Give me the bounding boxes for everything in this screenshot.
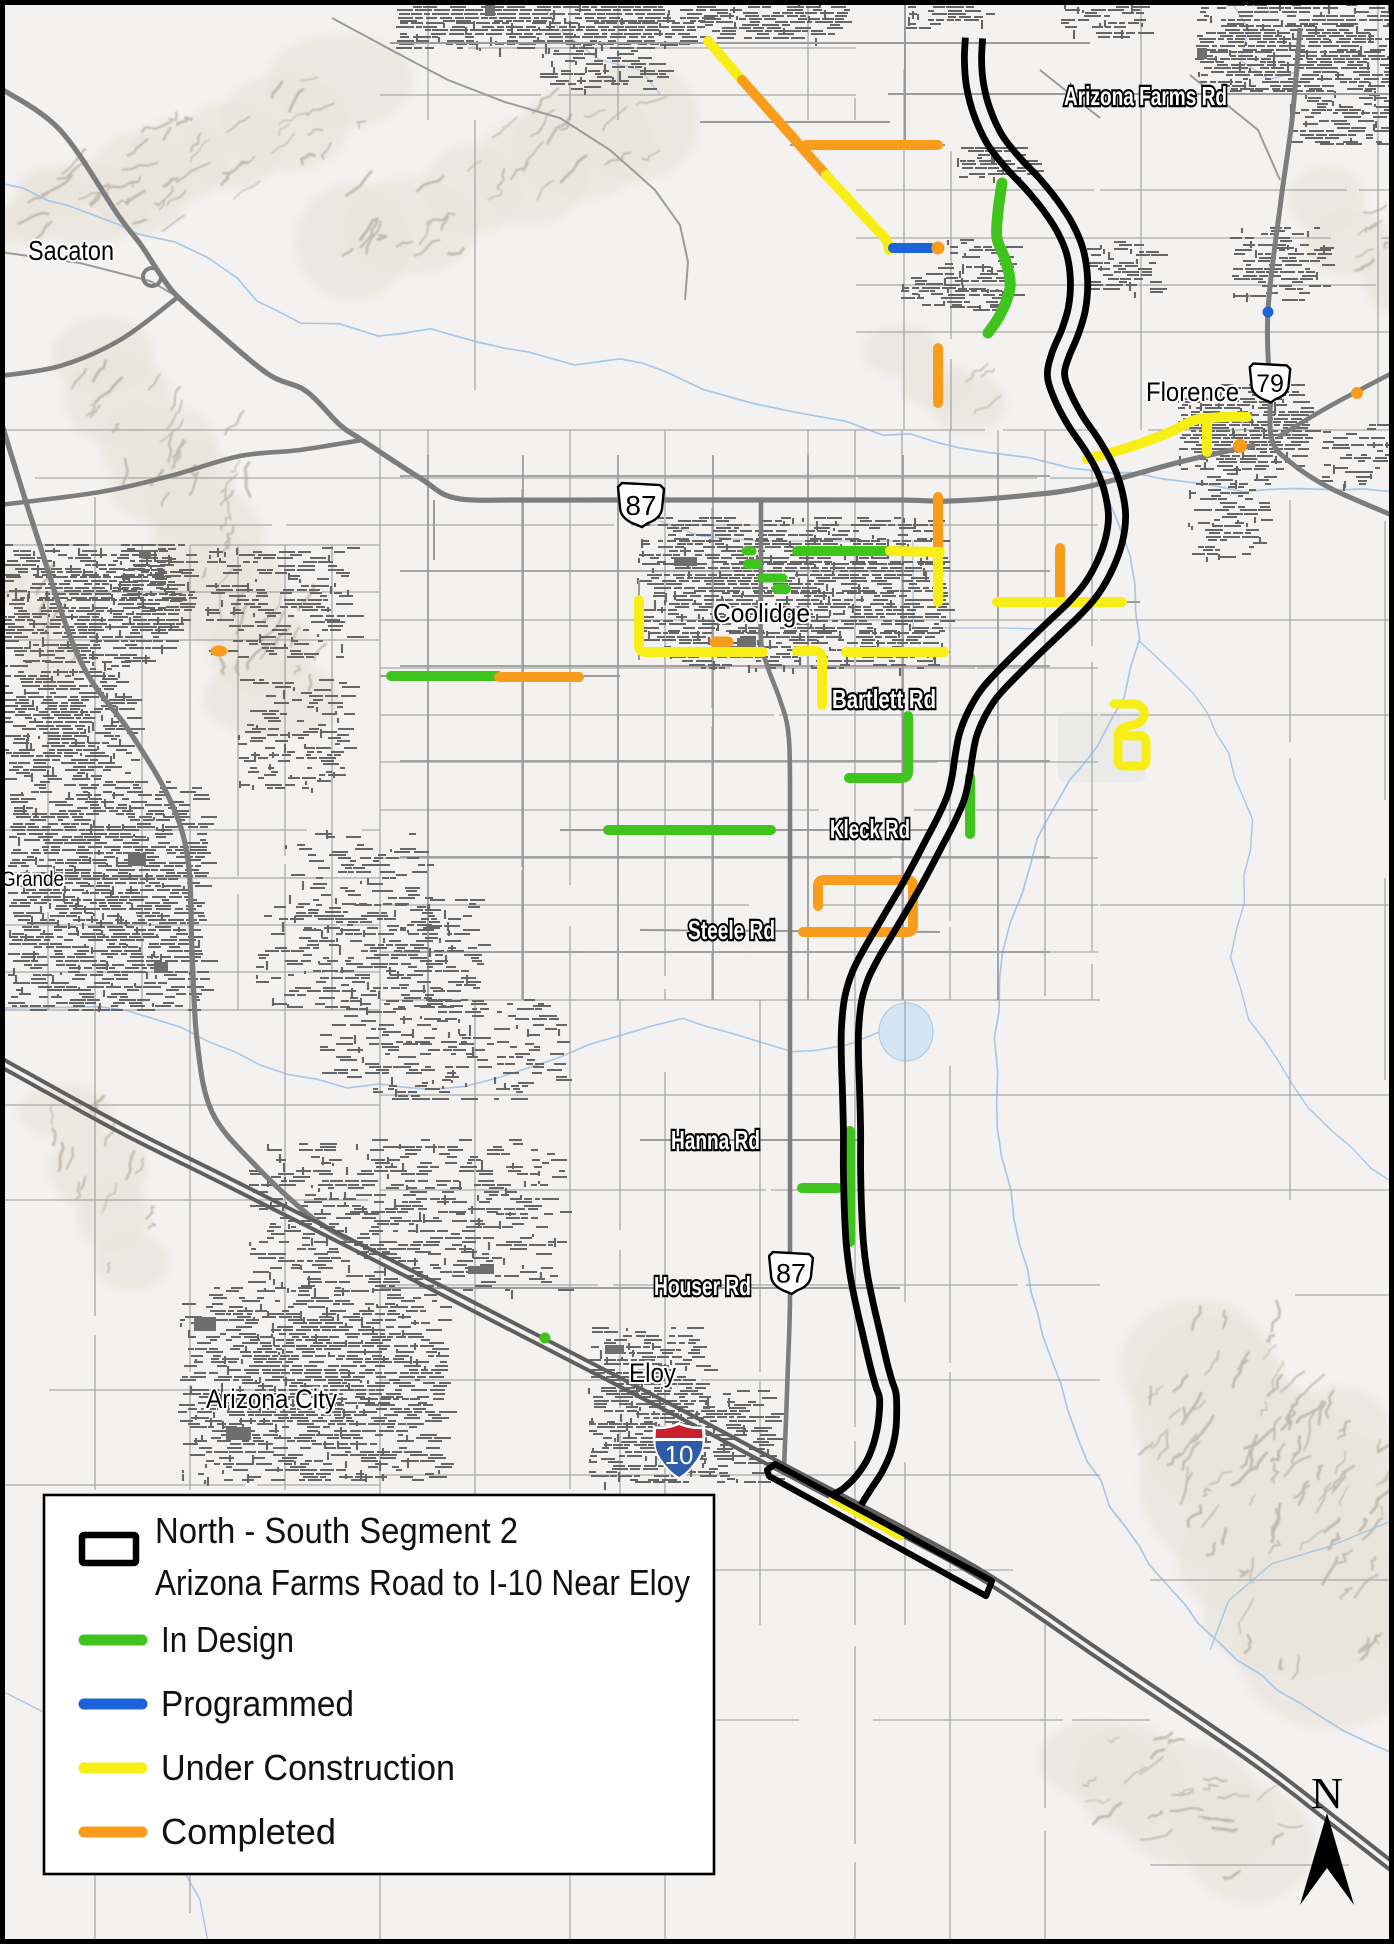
svg-text:Steele Rd: Steele Rd [688, 915, 775, 945]
svg-text:N: N [1311, 1769, 1343, 1818]
svg-text:Arizona Farms Road to I-10 Nea: Arizona Farms Road to I-10 Near Eloy [155, 1562, 690, 1603]
svg-text:Hanna Rd: Hanna Rd [671, 1125, 760, 1155]
svg-text:Arizona City: Arizona City [206, 1384, 337, 1414]
svg-text:Sacaton: Sacaton [28, 235, 114, 266]
svg-text:Completed: Completed [161, 1811, 336, 1852]
svg-text:87: 87 [776, 1259, 806, 1289]
svg-text:In Design: In Design [161, 1619, 294, 1660]
svg-text:Florence: Florence [1146, 377, 1239, 407]
svg-text:79: 79 [1256, 370, 1284, 398]
svg-text:Grande: Grande [1, 868, 64, 891]
svg-text:Programmed: Programmed [161, 1683, 354, 1724]
svg-text:Eloy: Eloy [629, 1358, 676, 1388]
svg-text:10: 10 [665, 1440, 694, 1470]
svg-text:Under Construction: Under Construction [161, 1747, 455, 1788]
svg-text:North - South Segment 2: North - South Segment 2 [155, 1510, 518, 1551]
svg-text:Arizona Farms Rd: Arizona Farms Rd [1064, 81, 1227, 111]
svg-text:Bartlett Rd: Bartlett Rd [832, 684, 936, 714]
svg-text:Kleck Rd: Kleck Rd [830, 814, 910, 844]
svg-text:87: 87 [625, 490, 656, 521]
svg-text:Houser Rd: Houser Rd [654, 1271, 751, 1301]
svg-text:Coolidge: Coolidge [713, 598, 810, 628]
